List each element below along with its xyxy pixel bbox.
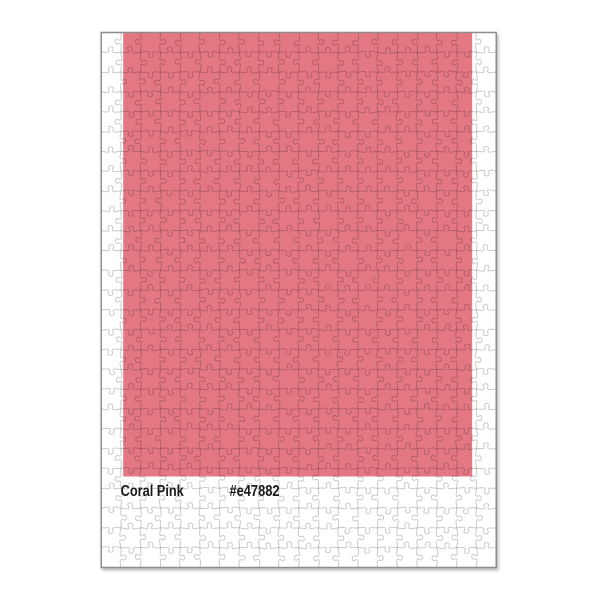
svg-text:Coral Pink: Coral Pink xyxy=(121,483,185,500)
svg-text:#e47882: #e47882 xyxy=(230,483,280,500)
